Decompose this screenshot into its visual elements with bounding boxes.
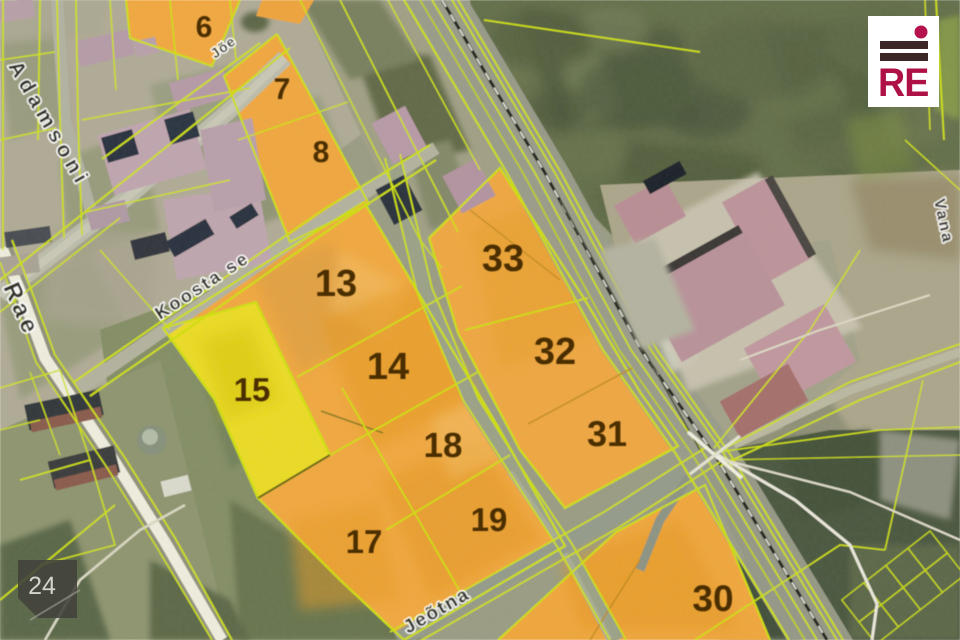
svg-text:6: 6 xyxy=(196,11,213,44)
svg-text:31: 31 xyxy=(587,413,627,454)
svg-text:14: 14 xyxy=(367,346,409,388)
svg-text:32: 32 xyxy=(534,331,576,373)
svg-text:13: 13 xyxy=(315,263,357,305)
svg-text:33: 33 xyxy=(482,238,524,280)
svg-text:17: 17 xyxy=(346,523,383,560)
svg-text:7: 7 xyxy=(274,73,291,106)
svg-text:15: 15 xyxy=(234,371,271,408)
svg-text:RE: RE xyxy=(878,61,929,105)
svg-text:8: 8 xyxy=(313,136,330,169)
svg-text:18: 18 xyxy=(424,426,463,465)
svg-text:24: 24 xyxy=(28,572,56,600)
svg-text:30: 30 xyxy=(692,578,733,619)
svg-text:19: 19 xyxy=(471,501,508,538)
